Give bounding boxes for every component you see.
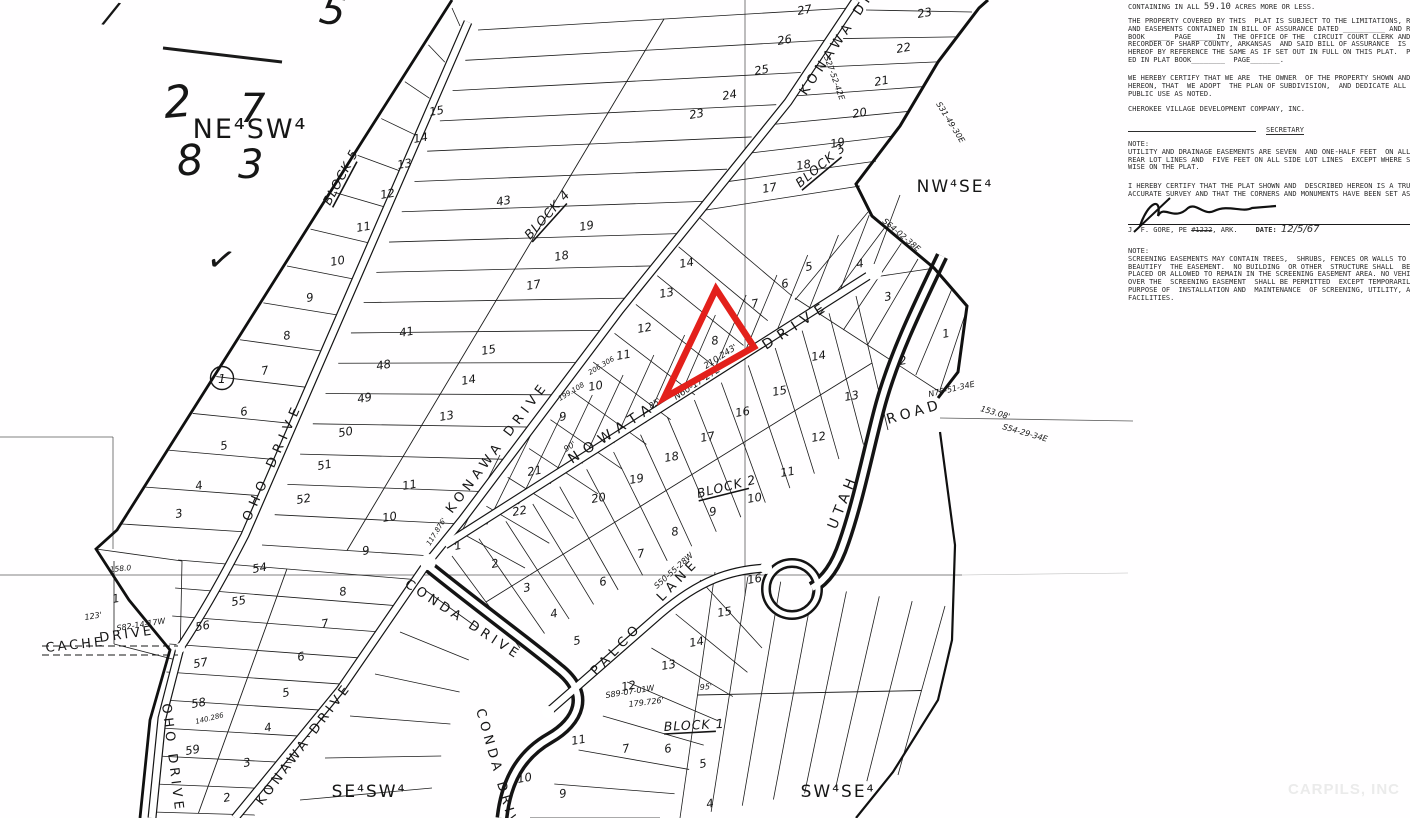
lot-number: 20 — [851, 105, 868, 121]
lot-number: 11 — [355, 219, 372, 235]
lot-number: 7 — [621, 741, 631, 756]
block-label: BLOCK 4 — [521, 187, 573, 242]
lot-number: 13 — [660, 657, 677, 673]
lot-number: 48 — [375, 357, 392, 373]
lot-number: 27 — [796, 2, 814, 18]
dimension-label: 158.0 — [109, 563, 131, 574]
dimension-label: 123' — [84, 610, 103, 622]
lot-number: 13 — [438, 408, 455, 424]
lot-number: 13 — [658, 285, 675, 301]
lot-number: 6 — [296, 649, 306, 664]
handwritten-mark: / — [99, 0, 122, 33]
doc-line: FACILITIES. — [1128, 295, 1410, 303]
company-name: CHEROKEE VILLAGE DEVELOPMENT COMPANY, IN… — [1128, 105, 1305, 113]
lot-number: 55 — [230, 593, 247, 609]
lot-number: 11 — [779, 464, 796, 480]
dimension-label: 95' — [699, 682, 712, 692]
street-label: DRIVE — [98, 623, 155, 646]
secretary-label: SECRETARY — [1266, 126, 1304, 135]
lot-number: 5 — [219, 438, 229, 453]
lot-number: 23 — [916, 5, 933, 21]
quadrant-label: NW⁴SE⁴ — [917, 177, 994, 197]
owner-certification-paragraph: WE HEREBY CERTIFY THAT WE ARE THE OWNER … — [1128, 75, 1410, 98]
lot-number: 19 — [628, 471, 645, 487]
lot-number: 41 — [398, 324, 415, 340]
lot-number: 10 — [587, 378, 604, 394]
lot-number: 5 — [572, 633, 582, 648]
lot-number: 5 — [698, 756, 708, 771]
lot-number: 17 — [525, 277, 543, 293]
lot-number: 3 — [522, 580, 532, 595]
lot-number: 12 — [810, 429, 827, 445]
lot-number: 18 — [553, 248, 570, 264]
lot-number: 54 — [251, 560, 268, 576]
lot-number: 22 — [511, 503, 528, 519]
easement-note-paragraph: NOTE:UTILITY AND DRAINAGE EASEMENTS ARE … — [1128, 141, 1410, 172]
lot-number: 23 — [688, 106, 705, 122]
lot-number: 14 — [460, 372, 477, 388]
handwritten-mark: 2 — [162, 76, 194, 129]
lot-number: 6 — [598, 574, 608, 589]
lot-number: 3 — [174, 506, 184, 521]
dimension-label: S31-49-30E — [934, 100, 967, 145]
containing-line: CONTAINING IN ALL 59.10 ACRES MORE OR LE… — [1128, 4, 1410, 12]
lot-number: 58 — [190, 695, 207, 711]
lot-number: 24 — [721, 87, 738, 103]
street-label: OHO DRIVE — [240, 400, 306, 523]
lot-number: 1 — [941, 326, 951, 341]
lot-number: 14 — [688, 634, 705, 650]
surveyor-signature — [1128, 194, 1318, 236]
doc-line: ED IN PLAT BOOK________ PAGE_______. — [1128, 57, 1410, 65]
lot-number: 2 — [222, 790, 232, 805]
lot-number: 17 — [761, 180, 779, 196]
lot-number: 17 — [699, 429, 717, 445]
containing-post: ACRES MORE OR LESS. — [1231, 3, 1315, 11]
lot-number: 10 — [329, 253, 346, 269]
lot-number: 9 — [558, 409, 568, 424]
lot-number: 5 — [804, 259, 814, 274]
handwritten-mark: 7 — [240, 86, 266, 132]
acreage-value: 59.10 — [1204, 2, 1231, 12]
lot-number: 15 — [716, 604, 733, 620]
street-label: PALCO — [588, 620, 646, 679]
handwritten-mark: 5 — [316, 0, 349, 36]
lot-number: 52 — [295, 491, 312, 507]
containing-pre: CONTAINING IN ALL — [1128, 3, 1204, 11]
lot-number: 12 — [636, 320, 653, 336]
bearing-annotations: N60-17-27E210.243'S64-02-38EN76-51-34E15… — [84, 55, 1050, 726]
street-label: DRIVE — [759, 297, 833, 353]
lot-number: 10 — [381, 509, 398, 525]
lot-number: 21 — [526, 463, 543, 479]
lot-number: 19 — [578, 218, 595, 234]
lot-number: 4 — [194, 478, 204, 493]
lot-number: 20 — [590, 490, 607, 506]
street-label: NOWATA — [565, 398, 659, 467]
lot-number: 56 — [194, 618, 211, 634]
handwritten-mark: 8 — [174, 134, 206, 186]
lot-number: 11 — [401, 477, 418, 493]
lot-number: 8 — [710, 333, 720, 348]
street-label: CACHE — [45, 635, 106, 656]
lot-number: 14 — [678, 255, 695, 271]
lot-number: 6 — [780, 276, 790, 291]
lot-number: 59 — [184, 742, 201, 758]
company-line: CHEROKEE VILLAGE DEVELOPMENT COMPANY, IN… — [1128, 106, 1410, 114]
lot-number: 4 — [549, 606, 559, 621]
lot-number: 9 — [708, 504, 718, 519]
signature-blank — [1128, 124, 1256, 132]
quadrant-label: SE⁴SW⁴ — [332, 782, 407, 802]
doc-line: PUBLIC USE AS NOTED. — [1128, 91, 1410, 99]
lot-number: 8 — [282, 328, 292, 343]
dimension-label: 206.306 — [587, 355, 616, 377]
lot-number: 3 — [883, 289, 893, 304]
lot-number: 7 — [260, 363, 270, 378]
lot-number: 1 — [453, 538, 463, 553]
dimension-label: S64-02-38E — [881, 217, 923, 254]
lot-number: 5 — [281, 685, 291, 700]
bill-of-assurance-paragraph: THE PROPERTY COVERED BY THIS PLAT IS SUB… — [1128, 18, 1410, 65]
lot-number: 10 — [746, 490, 763, 506]
lot-number: 4 — [855, 256, 865, 271]
handwritten-mark: ✓ — [203, 238, 239, 283]
handwriting-stroke — [163, 48, 282, 62]
watermark: CARPILS, INC — [1288, 781, 1400, 798]
lot-number: 51 — [316, 457, 333, 473]
lot-number: 13 — [843, 388, 860, 404]
lot-number: 15 — [771, 383, 788, 399]
lot-number: 2 — [898, 353, 908, 368]
lot-number: 15 — [480, 342, 497, 358]
lot-number: 18 — [663, 449, 680, 465]
lot-number: 50 — [337, 424, 354, 440]
lot-number: 49 — [356, 390, 373, 406]
lot-number: 8 — [670, 524, 680, 539]
lot-number: 21 — [873, 73, 890, 89]
lot-number: 22 — [895, 40, 912, 56]
lot-number: 10 — [516, 770, 533, 786]
lot-number: 43 — [495, 193, 512, 209]
lot-number: 16 — [746, 571, 763, 587]
dimension-label: S54-29-34E — [1001, 422, 1049, 444]
lot-number: 14 — [810, 348, 827, 364]
dimension-label: 179.726' — [628, 696, 664, 709]
lot-number: 13 — [396, 156, 413, 172]
monument-number: 1 — [218, 372, 226, 386]
lot-number: 25 — [753, 62, 770, 78]
lot-number: 15 — [428, 103, 445, 119]
lot-number: 3 — [242, 755, 252, 770]
lot-number: 4 — [263, 720, 273, 735]
lot-number: 1 — [111, 591, 121, 606]
lot-number: 16 — [734, 404, 751, 420]
lot-number: 2 — [490, 556, 500, 571]
lot-number: 7 — [636, 546, 646, 561]
lot-number: 6 — [663, 741, 673, 756]
lot-number: 12 — [379, 186, 396, 202]
street-label: KONAWA DRIVE — [443, 379, 552, 517]
scanned-plat-page: 1514131211109876543414849505152431918172… — [0, 0, 1410, 818]
street-label: ROAD — [885, 397, 944, 428]
lot-number: 8 — [338, 584, 348, 599]
doc-line: WISE ON THE PLAT. — [1128, 164, 1410, 172]
lot-number: 11 — [570, 732, 587, 748]
plat-notes-panel: CONTAINING IN ALL 59.10 ACRES MORE OR LE… — [1128, 0, 1410, 818]
lot-number: 6 — [239, 404, 249, 419]
lot-number: 9 — [361, 543, 371, 558]
lot-number: 7 — [320, 616, 330, 631]
handwritten-mark: 3 — [238, 142, 263, 188]
lot-number: 57 — [192, 655, 210, 671]
quadrant-label: SW⁴SE⁴ — [801, 782, 876, 802]
lot-number: 14 — [412, 130, 429, 146]
lot-number: 26 — [776, 32, 793, 48]
screening-note-paragraph: NOTE:SCREENING EASEMENTS MAY CONTAIN TRE… — [1128, 248, 1410, 303]
lot-number: 9 — [558, 786, 568, 801]
lot-number: 11 — [615, 347, 632, 363]
dimension-label: 140.286 — [195, 711, 226, 726]
lot-number: 9 — [305, 290, 315, 305]
lot-number: 7 — [750, 296, 760, 311]
secretary-line: SECRETARY — [1128, 124, 1410, 135]
